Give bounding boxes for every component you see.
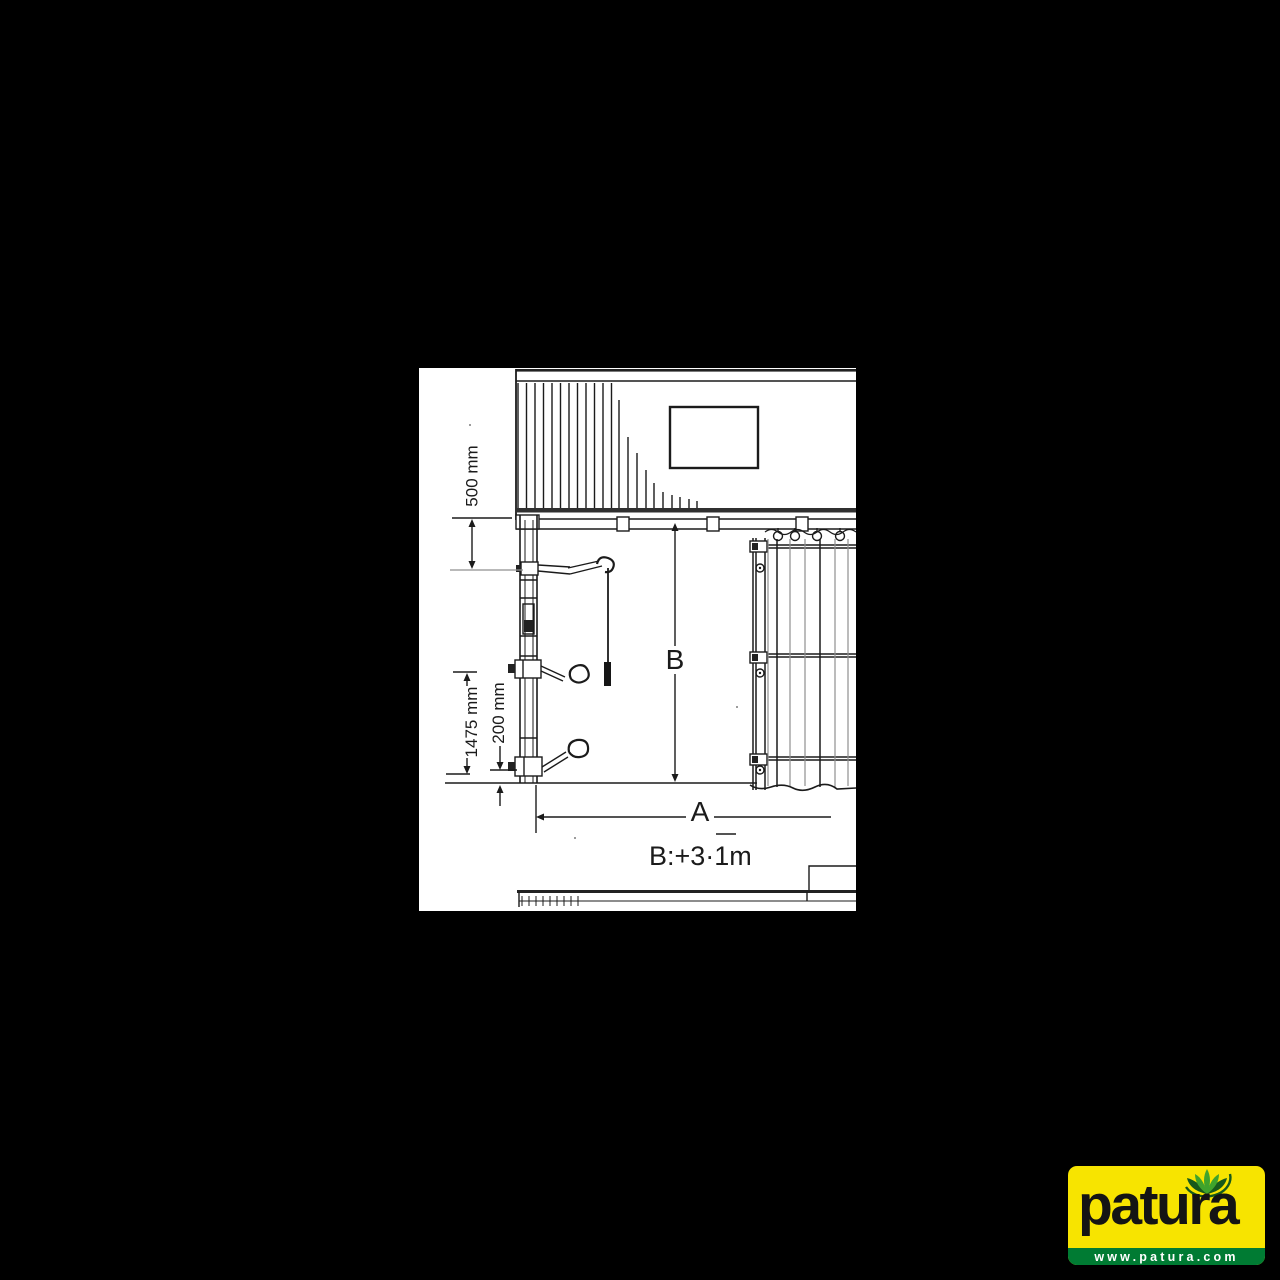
black-background: 500 mm 1475 mm 200 mm [0,0,1280,1280]
mounting-rail [516,515,856,531]
formula-note: B:+3·1m [649,834,752,871]
support-post [520,515,537,783]
dimension-200mm: 200 mm [489,682,517,806]
dimension-200mm-label: 200 mm [489,682,508,743]
windbreak-installation-diagram: 500 mm 1475 mm 200 mm [419,368,856,911]
dimension-A: A [536,785,831,833]
pull-rope [604,568,611,686]
dimension-1475mm-label: 1475 mm [462,687,481,758]
building-cladding [516,369,856,520]
dimension-500mm-label: 500 mm [463,445,482,506]
dimension-500mm: 500 mm [450,445,523,570]
patura-logo: patura www.patura.com [1068,1166,1265,1265]
dimension-A-label: A [691,796,710,827]
crank-handle-top [516,557,614,575]
dimension-1475mm: 1475 mm [446,672,481,774]
curtain-panel [750,528,856,790]
dimension-B: B [666,523,685,782]
window-opening [670,407,758,468]
patura-url-text: www.patura.com [1094,1250,1238,1264]
dimension-B-label: B [666,644,685,675]
patura-url-bar: www.patura.com [1068,1248,1265,1265]
formula-text: B:+3·1m [649,841,752,871]
technical-drawing-panel: 500 mm 1475 mm 200 mm [419,368,856,911]
patura-wordmark: patura [1078,1177,1237,1234]
lower-section-drawing [517,866,856,907]
